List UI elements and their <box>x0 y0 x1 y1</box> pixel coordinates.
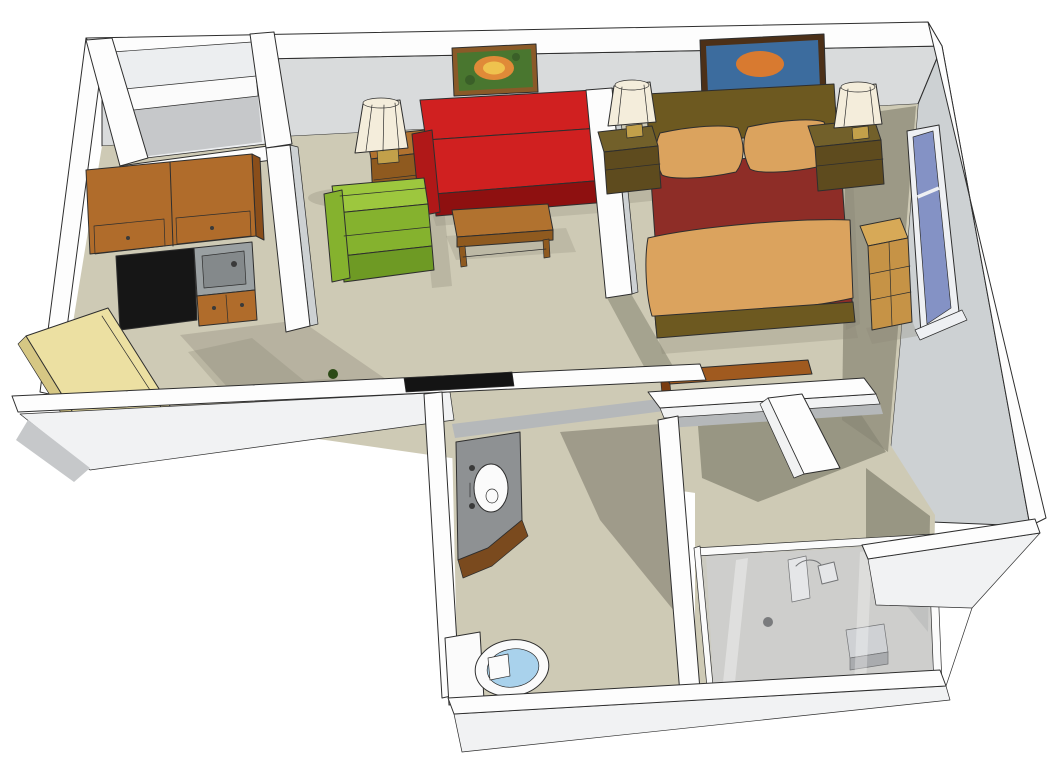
refrigerator-front <box>116 248 197 330</box>
painting-swirl <box>736 51 784 77</box>
kitchen-sink <box>194 242 255 296</box>
drawer-handle <box>126 236 130 240</box>
double-bed <box>646 84 855 338</box>
lamp-shade-top <box>363 98 399 108</box>
nightstand-front <box>604 146 661 194</box>
bed-pillow-left <box>656 126 743 178</box>
floor-plan-page <box>0 0 1062 775</box>
base-cabinet-handle <box>212 306 216 310</box>
plant-center <box>328 369 338 379</box>
lamp-base <box>852 126 869 140</box>
painting-leaf <box>465 75 475 85</box>
flower-painting <box>452 44 538 96</box>
green-armchair <box>324 178 434 282</box>
nightstand-front <box>815 140 884 191</box>
painting-leaf <box>512 53 520 61</box>
floor-plan-3d-rendering <box>0 0 1062 775</box>
lamp-base <box>626 124 643 138</box>
dresser-front <box>868 238 912 330</box>
faucet-knob <box>469 465 475 471</box>
faucet-knob <box>469 503 475 509</box>
sink-basin <box>202 251 246 288</box>
base-cabinet-handle <box>240 303 244 307</box>
sink-faucet <box>231 261 237 267</box>
red-sofa <box>412 90 608 216</box>
coffee-table-leg <box>543 239 550 258</box>
toilet-flush-lid <box>488 654 510 680</box>
bed-throw-blanket <box>646 220 853 317</box>
refrigerator <box>116 248 197 330</box>
base-cabinet <box>197 290 257 326</box>
right-nightstand <box>808 119 884 191</box>
drawer-handle <box>210 226 214 230</box>
sink-bowl <box>474 464 508 512</box>
painting-flower-center <box>483 62 505 75</box>
